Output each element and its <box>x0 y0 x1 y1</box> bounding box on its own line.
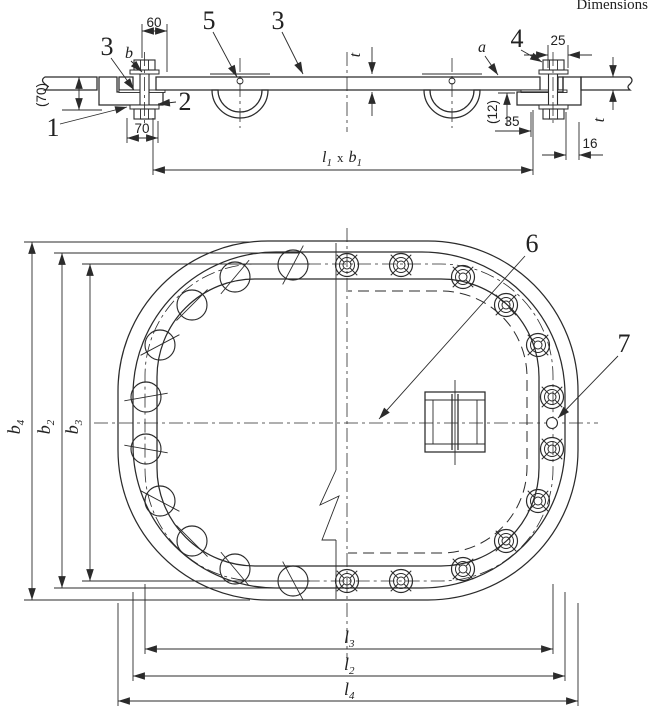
installed-bolt-symbol <box>495 294 518 317</box>
installed-bolt-symbol <box>390 254 413 277</box>
bolt-hole-symbol <box>176 525 207 556</box>
item-label-1: 1 <box>47 113 60 142</box>
leader-line-7 <box>558 356 618 418</box>
gasket-line <box>170 291 527 553</box>
bolt-hole-symbol <box>124 434 167 464</box>
dim-70-label: 70 <box>134 121 149 136</box>
nut-top <box>543 60 564 70</box>
dim-16-label: 16 <box>582 136 597 151</box>
leader-line <box>158 102 176 104</box>
dim-12p-label: (12) <box>485 100 500 124</box>
dim-l3-label: l3 <box>344 627 355 650</box>
item-label-6: 6 <box>526 229 539 258</box>
break-zigzag <box>320 470 339 540</box>
washer-bottom <box>539 105 568 109</box>
plan-view: 6 7 b4 b2 b3 l3 <box>4 228 631 706</box>
dim-b2-label: b2 <box>34 419 57 434</box>
dim-35: 35 <box>495 112 531 137</box>
section-view: 60 (70) 70 25 (12) 35 <box>34 6 632 175</box>
cover-outline <box>133 252 565 588</box>
deck-plate-left <box>43 77 98 90</box>
installed-bolt-symbol <box>541 386 564 409</box>
bolt-hole-symbol <box>220 260 250 294</box>
item-label-7: 7 <box>618 329 631 358</box>
l1-b1-label: l1xb1 <box>322 149 362 169</box>
dim-l1-b1: l1xb1 <box>153 110 533 175</box>
opening-outline <box>157 279 539 566</box>
dim-b4: b4 <box>4 242 250 600</box>
cover-plate <box>156 77 540 90</box>
break-line <box>320 243 339 599</box>
nut-bottom <box>543 109 564 119</box>
bolt-assembly-right <box>539 52 568 126</box>
dim-b4-label: b4 <box>4 419 27 434</box>
dimensions-note: Dimensions <box>576 0 648 13</box>
item-label-3-center: 3 <box>272 6 285 35</box>
dim-b3-label: b3 <box>62 419 85 434</box>
washer-top <box>539 70 568 74</box>
handle-detail <box>425 380 485 465</box>
dim-25-label: 25 <box>550 33 565 48</box>
deck-plate-right <box>581 77 632 90</box>
dim-70p-label: (70) <box>34 83 49 107</box>
bolt-hole-symbol <box>176 289 207 320</box>
telltale-hole <box>547 418 558 429</box>
leader-line <box>485 56 498 75</box>
leader-line <box>282 32 303 74</box>
installed-bolt-symbol <box>527 490 550 513</box>
leader-line <box>213 32 237 77</box>
coaming-outline <box>118 241 578 600</box>
dim-l4-label: l4 <box>344 679 355 702</box>
leader-line <box>521 50 542 62</box>
ref-label-b: b <box>125 45 133 62</box>
dim-l2-label: l2 <box>344 654 355 677</box>
dim-35-label: 35 <box>504 114 519 129</box>
dim-70-paren: (70) <box>34 77 102 110</box>
installed-bolt-symbol <box>452 266 475 289</box>
dim-t-center: t <box>347 47 372 116</box>
installed-bolt-symbol <box>452 558 475 581</box>
ref-label-a: a <box>478 39 486 56</box>
bolt-hole-symbol <box>124 382 167 412</box>
item-label-4: 4 <box>511 24 524 53</box>
cover-lip-right <box>558 77 563 90</box>
bolt-line <box>145 264 553 581</box>
installed-bolt-symbol <box>527 334 550 357</box>
technical-drawing-page: Dimensions <box>0 0 650 708</box>
dim-60-label: 60 <box>146 15 161 30</box>
hatch-cover-drawing: Dimensions <box>0 0 650 708</box>
t-mid-label: t <box>347 52 364 57</box>
dim-l3: l3 <box>145 584 553 654</box>
item-label-5: 5 <box>203 6 216 35</box>
installed-bolt-symbol <box>541 438 564 461</box>
t-right-label: t <box>591 117 608 122</box>
item-label-3-left: 3 <box>101 32 114 61</box>
bolt-assembly-left <box>130 52 159 126</box>
item-label-2: 2 <box>179 87 192 116</box>
